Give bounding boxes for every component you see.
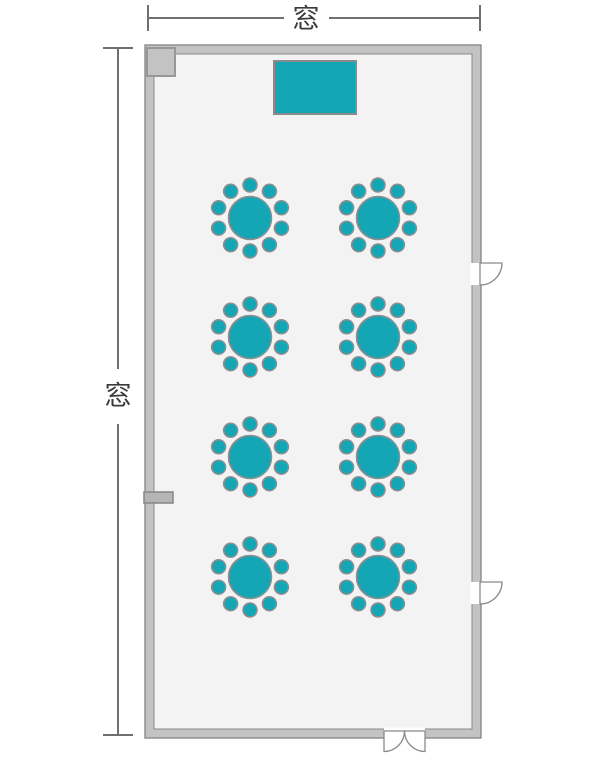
chair	[212, 580, 226, 594]
room-floor	[154, 54, 472, 729]
door-swing-bottom-left	[384, 731, 405, 752]
chair	[262, 477, 276, 491]
chair	[340, 201, 354, 215]
door-swing-right-1	[480, 263, 502, 285]
round-table	[229, 556, 272, 599]
chair	[224, 477, 238, 491]
door-swing-right-2	[480, 582, 502, 604]
chair	[340, 320, 354, 334]
chair	[274, 340, 288, 354]
chair	[212, 560, 226, 574]
wall-marker	[144, 492, 173, 503]
round-table	[229, 197, 272, 240]
chair	[340, 460, 354, 474]
chair	[224, 303, 238, 317]
chair	[212, 320, 226, 334]
chair	[224, 238, 238, 252]
chair	[212, 460, 226, 474]
chair	[274, 580, 288, 594]
chair	[402, 340, 416, 354]
left-dimension: 窓	[103, 48, 133, 735]
chair	[371, 537, 385, 551]
chair	[402, 221, 416, 235]
chair	[243, 483, 257, 497]
chair	[262, 238, 276, 252]
chair	[371, 244, 385, 258]
chair	[274, 201, 288, 215]
chair	[262, 543, 276, 557]
chair	[390, 477, 404, 491]
chair	[224, 184, 238, 198]
chair	[243, 244, 257, 258]
chair	[371, 417, 385, 431]
floorplan-page: 窓 窓	[0, 0, 601, 758]
chair	[352, 184, 366, 198]
round-table	[357, 556, 400, 599]
chair	[352, 423, 366, 437]
chair	[274, 221, 288, 235]
chair	[340, 221, 354, 235]
chair	[402, 560, 416, 574]
chair	[352, 357, 366, 371]
chair	[390, 238, 404, 252]
chair	[243, 417, 257, 431]
chair	[340, 440, 354, 454]
chair	[224, 357, 238, 371]
chair	[371, 603, 385, 617]
chair	[243, 363, 257, 377]
chair	[371, 297, 385, 311]
chair	[390, 357, 404, 371]
chair	[243, 297, 257, 311]
round-table	[229, 436, 272, 479]
chair	[371, 178, 385, 192]
chair	[390, 543, 404, 557]
chair	[274, 320, 288, 334]
stage	[274, 61, 356, 114]
round-table	[357, 197, 400, 240]
chair	[371, 363, 385, 377]
chair	[402, 580, 416, 594]
chair	[352, 597, 366, 611]
chair	[402, 201, 416, 215]
chair	[212, 201, 226, 215]
round-table	[357, 316, 400, 359]
chair	[212, 340, 226, 354]
chair	[352, 477, 366, 491]
chair	[262, 184, 276, 198]
chair	[390, 303, 404, 317]
chair	[212, 440, 226, 454]
left-window-label: 窓	[105, 381, 132, 411]
chair	[243, 178, 257, 192]
chair	[402, 320, 416, 334]
chair	[262, 597, 276, 611]
chair	[340, 340, 354, 354]
round-table	[357, 436, 400, 479]
chair	[274, 560, 288, 574]
chair	[224, 543, 238, 557]
round-table	[229, 316, 272, 359]
top-window-label: 窓	[293, 4, 320, 34]
chair	[371, 483, 385, 497]
chair	[402, 440, 416, 454]
chair	[390, 423, 404, 437]
chair	[352, 543, 366, 557]
top-dimension: 窓	[148, 4, 480, 34]
chair	[262, 357, 276, 371]
chair	[224, 423, 238, 437]
chair	[262, 423, 276, 437]
corner-column	[147, 48, 175, 76]
chair	[352, 238, 366, 252]
chair	[212, 221, 226, 235]
chair	[243, 537, 257, 551]
chair	[390, 184, 404, 198]
chair	[340, 580, 354, 594]
chair	[274, 460, 288, 474]
chair	[352, 303, 366, 317]
chair	[262, 303, 276, 317]
chair	[402, 460, 416, 474]
chair	[243, 603, 257, 617]
chair	[340, 560, 354, 574]
floorplan-canvas: 窓 窓	[0, 0, 601, 758]
chair	[224, 597, 238, 611]
door-swing-bottom-right	[405, 731, 426, 752]
chair	[274, 440, 288, 454]
chair	[390, 597, 404, 611]
